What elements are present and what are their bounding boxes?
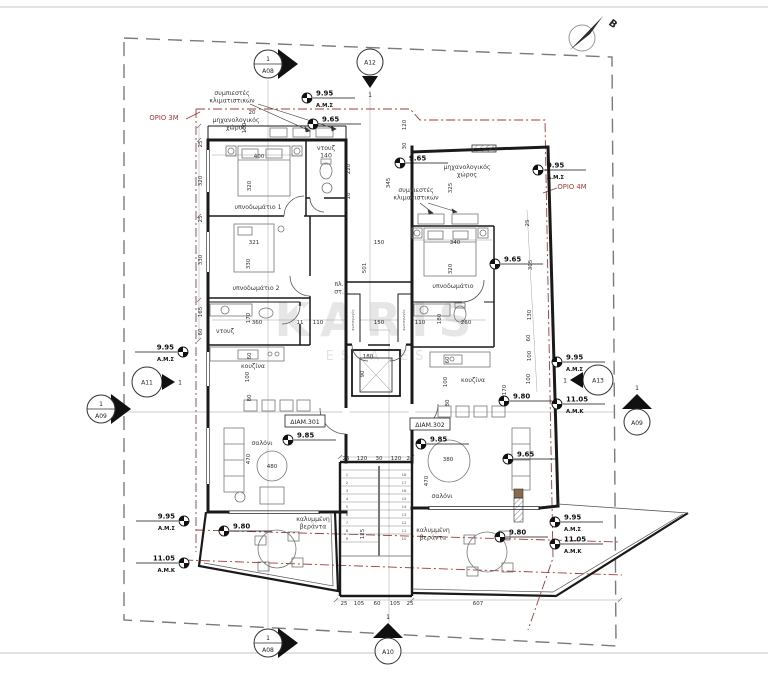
svg-text:1: 1	[99, 401, 103, 408]
dimension-text: 320	[198, 175, 204, 186]
dimension-text: 220	[346, 163, 352, 174]
dimension-text: 20	[249, 110, 256, 116]
svg-text:A13: A13	[592, 378, 604, 385]
dimension-text: 501	[362, 263, 368, 274]
section-arrow-icon	[373, 623, 403, 638]
svg-text:9.80: 9.80	[513, 393, 530, 401]
dimension-text: 320	[247, 180, 253, 191]
dimension-text: 100	[526, 373, 532, 384]
dimension-text: 120	[391, 456, 402, 462]
room-label: κουζίνα	[241, 362, 265, 370]
dimension-text: 25	[525, 219, 531, 226]
dimension-text: 170	[502, 384, 508, 395]
dimension-text: 100	[245, 371, 251, 382]
dimension-text: 100	[527, 350, 533, 361]
dimension-text: 60	[247, 352, 253, 359]
dimension-text: 110	[313, 320, 324, 326]
room-label: πλ.στ.	[334, 281, 344, 296]
dimension-text: 25	[407, 456, 414, 462]
svg-text:1: 1	[368, 92, 372, 99]
section-marker-a12: A121	[357, 49, 383, 99]
svg-text:ΔΙΑΜ.302: ΔΙΑΜ.302	[415, 422, 444, 429]
room-label: καλυμμένηβεράντα	[296, 515, 330, 531]
setback-label: ΟΡΙΟ 4Μ	[557, 183, 586, 191]
dimension-text: 400	[254, 154, 265, 160]
room-label: ντουζ140	[317, 145, 336, 160]
elevation-benchmark: 9.65	[490, 256, 543, 270]
svg-text:Α.Μ.Σ: Α.Μ.Σ	[566, 367, 583, 373]
room-label: ντουζ	[216, 328, 235, 335]
svg-text:1: 1	[386, 614, 390, 621]
svg-text:A09: A09	[95, 413, 107, 420]
svg-text:A11: A11	[141, 380, 153, 387]
dimension-text: 8	[346, 528, 349, 533]
svg-text:11.05: 11.05	[564, 536, 586, 544]
room-label: κουζίνα	[461, 376, 485, 384]
stairs	[341, 466, 411, 556]
room-label: υπνοδωμάτιο 1	[234, 203, 281, 211]
svg-text:9.80: 9.80	[233, 523, 250, 531]
svg-text:9.65: 9.65	[409, 155, 426, 163]
svg-text:9.95: 9.95	[158, 513, 175, 521]
svg-text:Α.Μ.Κ: Α.Μ.Κ	[158, 568, 176, 574]
dimension-text: 150	[374, 240, 385, 246]
room-label: συμπιεστέςκλιματιστικών	[393, 186, 439, 202]
dimension-text: 180	[437, 313, 443, 324]
room-label: σαλόνι	[252, 439, 273, 447]
elevation-benchmark: 9.65	[308, 116, 361, 130]
dimension-text: 470	[246, 453, 252, 464]
svg-text:9.65: 9.65	[517, 451, 534, 459]
section-arrow-icon	[362, 76, 378, 88]
svg-text:1: 1	[178, 380, 182, 387]
dimension-text: 330	[198, 254, 204, 265]
dimension-text: 260	[461, 320, 472, 326]
dimension-text: 345	[386, 177, 392, 188]
dimension-text: 6	[346, 512, 349, 517]
dimension-text: 360	[252, 320, 263, 326]
dimension-text: 60	[445, 356, 451, 363]
floor-plan-canvas: KARIS ESTATES Β	[0, 0, 768, 673]
dimension-text: 120	[402, 119, 408, 130]
section-marker-a09: 1A09	[622, 385, 652, 435]
svg-text:Α.Μ.Κ: Α.Μ.Κ	[564, 549, 582, 555]
section-arrow-icon	[622, 394, 652, 409]
svg-text:9.95: 9.95	[547, 162, 564, 170]
setback-label: ΟΡΙΟ 3Μ	[149, 114, 178, 122]
elevation-benchmark: 9.85	[283, 432, 336, 446]
svg-text:A08: A08	[262, 68, 274, 75]
svg-text:1: 1	[635, 385, 639, 392]
section-arrow-icon	[162, 374, 175, 390]
room-label: μηχανολογικόςχώρος	[443, 163, 490, 179]
dimension-text: 130	[527, 309, 533, 320]
elevation-benchmark: 9.65	[503, 451, 556, 465]
dimension-text: 380	[443, 457, 454, 463]
elevation-benchmark: 9.95Α.Μ.Σ	[533, 162, 586, 182]
dimension-text: 9	[346, 536, 349, 541]
room-label: μηχανολογικόςχώρος	[212, 116, 259, 132]
dimension-text: 12	[402, 520, 407, 525]
svg-text:9.85: 9.85	[430, 436, 447, 444]
svg-text:1: 1	[266, 56, 270, 63]
dimension-text: 480	[267, 464, 278, 470]
dimension-text: 11	[297, 320, 304, 326]
dimension-text: 150	[374, 320, 385, 326]
svg-text:Α.Μ.Σ: Α.Μ.Σ	[564, 527, 581, 533]
svg-text:A08: A08	[262, 647, 274, 654]
room-label: σαλόνι	[432, 492, 453, 500]
dimension-text: 11	[402, 528, 407, 533]
watermark: KARIS ESTATES	[275, 293, 482, 364]
dimension-text: 14	[402, 504, 407, 509]
dimension-text: 25	[343, 456, 350, 462]
elevation-benchmark: 9.95Α.Μ.Σ	[550, 514, 603, 534]
dimension-text: 80	[247, 394, 253, 401]
svg-text:9.95: 9.95	[564, 514, 581, 522]
dimension-text: 30	[376, 456, 383, 462]
dimension-text: 13	[402, 512, 407, 517]
north-arrow: Β	[569, 16, 619, 51]
dimension-text: 4	[346, 496, 349, 501]
dimension-text: 60	[526, 334, 532, 341]
svg-text:9.80: 9.80	[509, 529, 526, 537]
unit-labels-layer: ΔΙΑΜ.301ΔΙΑΜ.302	[285, 415, 450, 430]
dimension-text: 165	[198, 306, 204, 317]
dimension-text: 10	[402, 536, 407, 541]
dimension-text: 125	[360, 528, 366, 539]
north-label: Β	[606, 18, 619, 31]
dimension-text: 330	[246, 258, 252, 269]
room-label: φωταγωγός	[351, 309, 355, 330]
dimension-text: 340	[450, 240, 461, 246]
elevation-benchmark: 9.80	[219, 523, 272, 537]
dimension-text: 30	[402, 142, 408, 149]
dimension-text: 100	[443, 376, 449, 387]
svg-text:Α.Μ.Σ: Α.Μ.Σ	[547, 175, 564, 181]
dimension-text: 25	[198, 140, 204, 147]
elevation-benchmark: 9.65	[395, 155, 448, 169]
dimension-text: 321	[249, 240, 260, 246]
dimension-text: 25	[198, 215, 204, 222]
elevation-benchmark: 9.95Α.Μ.Σ	[136, 513, 189, 533]
dimension-text: 180	[363, 354, 374, 360]
svg-text:9.95: 9.95	[566, 354, 583, 362]
elevation-benchmark: 11.05Α.Μ.Κ	[550, 536, 603, 556]
dimension-text: 105	[390, 601, 401, 607]
dimension-text: 60	[198, 328, 204, 335]
svg-text:9.65: 9.65	[504, 256, 521, 264]
dimension-text: 110	[415, 320, 426, 326]
dimension-text: 3	[346, 488, 349, 493]
dimension-text: 17	[402, 480, 407, 485]
svg-text:Α.Μ.Σ: Α.Μ.Σ	[316, 103, 333, 109]
section-marker-a08: 1A08	[254, 49, 298, 79]
room-label: υπνοδωμάτιο 2	[232, 284, 279, 292]
dimension-text: 100	[242, 122, 248, 133]
elevation-benchmark: 9.95Α.Μ.Σ	[302, 90, 355, 110]
dimension-text: 25	[341, 601, 348, 607]
dimension-text: 16	[402, 488, 407, 493]
dimension-text: 60	[374, 601, 381, 607]
dimension-text: 170	[246, 312, 252, 323]
svg-text:9.95: 9.95	[157, 344, 174, 352]
section-marker-a10: 1A10	[373, 614, 403, 664]
dimension-text: 120	[357, 456, 368, 462]
svg-text:11.05: 11.05	[153, 555, 175, 563]
watermark-line2: ESTATES	[326, 349, 431, 364]
elevation-benchmark: 9.85	[416, 436, 469, 450]
dimension-text: 470	[424, 475, 430, 486]
svg-text:Α.Μ.Κ: Α.Μ.Κ	[566, 409, 584, 415]
dimension-text: 7	[346, 520, 349, 525]
svg-text:9.65: 9.65	[322, 116, 339, 124]
svg-text:Α.Μ.Σ: Α.Μ.Σ	[157, 357, 174, 363]
section-marker-a11: A111	[132, 367, 182, 397]
dimension-text: 2	[346, 480, 349, 485]
dimension-text: 305	[528, 259, 534, 270]
dimension-text: 320	[448, 263, 454, 274]
svg-text:Α.Μ.Σ: Α.Μ.Σ	[158, 526, 175, 532]
svg-text:11.05: 11.05	[566, 396, 588, 404]
section-arrow-icon	[570, 372, 583, 388]
elevation-benchmark: 11.05Α.Μ.Κ	[136, 555, 189, 575]
elevation-benchmark: 9.95Α.Μ.Σ	[135, 344, 188, 364]
dimension-text: 607	[473, 601, 484, 607]
dimension-text: 105	[354, 601, 365, 607]
dimension-text: 15	[402, 496, 407, 501]
apartment-label: ΔΙΑΜ.302	[410, 418, 450, 430]
apartment-label: ΔΙΑΜ.301	[285, 415, 325, 427]
dimension-text: 5	[346, 504, 349, 509]
svg-text:9.85: 9.85	[297, 432, 314, 440]
dimension-text: 325	[448, 182, 454, 193]
svg-text:9.95: 9.95	[316, 90, 333, 98]
dimension-text: 80	[445, 399, 451, 406]
dimension-text: 1	[346, 472, 349, 477]
room-label: καλυμμένηβεράντα	[416, 526, 450, 542]
floor-plan-page: KARIS ESTATES Β	[0, 0, 768, 673]
svg-text:A10: A10	[382, 649, 394, 656]
dimension-text: 25	[407, 601, 414, 607]
room-label: υπνοδωμάτιο	[432, 282, 473, 290]
svg-text:1: 1	[266, 635, 270, 642]
room-label: συμπιεστέςκλιματιστικών	[209, 89, 255, 105]
dimension-text: 18	[402, 472, 407, 477]
svg-text:A09: A09	[631, 420, 643, 427]
dimension-text: 90	[360, 370, 366, 377]
dimension-text: 10	[346, 192, 352, 199]
room-label: φωταγωγός	[402, 309, 406, 330]
svg-text:A12: A12	[364, 60, 376, 67]
north-needle-icon	[570, 16, 603, 50]
svg-text:1: 1	[563, 378, 567, 385]
svg-text:ΔΙΑΜ.301: ΔΙΑΜ.301	[290, 419, 319, 426]
